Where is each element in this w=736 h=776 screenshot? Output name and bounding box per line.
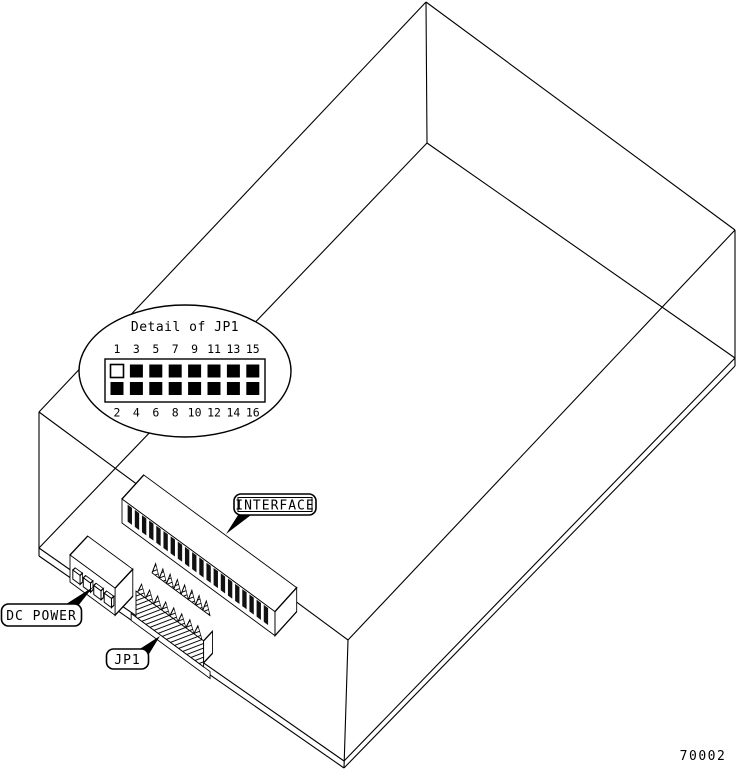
interface-tooth (128, 505, 132, 525)
jumper-pin-open (111, 365, 124, 378)
interface-tooth (206, 563, 210, 583)
pin-number-label: 13 (226, 342, 240, 356)
front-vertical-edge (344, 640, 348, 768)
pin-number-label: 3 (133, 342, 140, 356)
bottom-front-right-edge (344, 358, 735, 761)
jumper-pin-filled (227, 382, 240, 395)
jp1-rear-pin (152, 561, 159, 578)
technical-drawing-page: Detail of JP1 13579111315 246810121416 I… (0, 0, 736, 776)
interface-tooth (156, 526, 160, 546)
jp1-rear-pin (203, 598, 210, 615)
interface-tooth (214, 568, 218, 588)
jumper-pin-filled (188, 365, 201, 378)
interface-tooth (163, 531, 167, 551)
pin-number-label: 11 (207, 342, 221, 356)
jp1-rear-pin (174, 577, 181, 594)
jumper-pin-filled (169, 382, 182, 395)
interface-tooth (192, 552, 196, 572)
pin-number-label: 4 (133, 406, 140, 420)
pin-number-label: 15 (246, 342, 260, 356)
interface-tooth (142, 515, 146, 535)
jumper-pin-filled (227, 365, 240, 378)
dc-power-callout: DC POWER (2, 587, 94, 626)
interface-tooth (228, 579, 232, 599)
jumper-pin-filled (188, 382, 201, 395)
base-lip-right-edge (344, 366, 735, 768)
interface-label: INTERFACE (235, 499, 314, 514)
jp1-label: JP1 (114, 653, 140, 668)
pin-number-label: 12 (207, 406, 221, 420)
interface-tooth (199, 557, 203, 577)
device-diagram: Detail of JP1 13579111315 246810121416 I… (0, 0, 736, 776)
interface-tooth (235, 584, 239, 604)
pin-number-label: 8 (172, 406, 179, 420)
interface-callout: INTERFACE (226, 494, 316, 534)
pin-number-label: 2 (114, 406, 121, 420)
jumper-block-outline (105, 359, 265, 402)
interface-tooth (242, 589, 246, 609)
interface-tooth (185, 547, 189, 567)
top-right-edge (426, 2, 735, 230)
pin-number-label: 1 (114, 342, 121, 356)
pin-number-label: 16 (246, 406, 260, 420)
detail-callout: Detail of JP1 13579111315 246810121416 (79, 305, 291, 437)
jumper-pin-filled (130, 365, 143, 378)
figure-number: 70002 (680, 749, 727, 764)
interface-tooth (221, 573, 225, 593)
interface-tooth (171, 536, 175, 556)
jumper-pin-filled (130, 382, 143, 395)
jp1-rear-pin (181, 582, 188, 599)
interface-tooth (135, 510, 139, 530)
jumper-pin-filled (111, 382, 124, 395)
interface-tooth (257, 600, 261, 620)
jumper-pin-filled (208, 382, 221, 395)
dc-power-label: DC POWER (6, 609, 77, 624)
jumper-pin-filled (149, 382, 162, 395)
pin-number-label: 14 (226, 406, 240, 420)
jumper-pin-filled (208, 365, 221, 378)
jumper-pin-filled (169, 365, 182, 378)
jp1-rear-pin (188, 588, 195, 605)
detail-title: Detail of JP1 (131, 320, 239, 335)
jp1-end-cap (204, 625, 213, 670)
jp1-callout: JP1 (107, 636, 161, 669)
pin-number-label: 7 (172, 342, 179, 356)
jumper-pin-filled (246, 365, 259, 378)
bottom-rear-right-edge (427, 143, 735, 358)
jumper-pin-filled (149, 365, 162, 378)
interface-tooth (264, 605, 268, 625)
jumper-pin-filled (246, 382, 259, 395)
pin-number-label: 10 (188, 406, 202, 420)
jp1-rear-pin (159, 566, 166, 583)
pin-number-label: 6 (152, 406, 159, 420)
interface-tooth (178, 542, 182, 562)
jp1-rear-pin (196, 593, 203, 610)
jp1-rear-pin (167, 572, 174, 589)
interface-tooth (249, 594, 253, 614)
pin-number-label: 5 (152, 342, 159, 356)
rear-vertical-edge (426, 2, 427, 143)
interface-tooth (149, 520, 153, 540)
pin-number-label: 9 (191, 342, 198, 356)
front-top-right-edge (348, 230, 735, 640)
